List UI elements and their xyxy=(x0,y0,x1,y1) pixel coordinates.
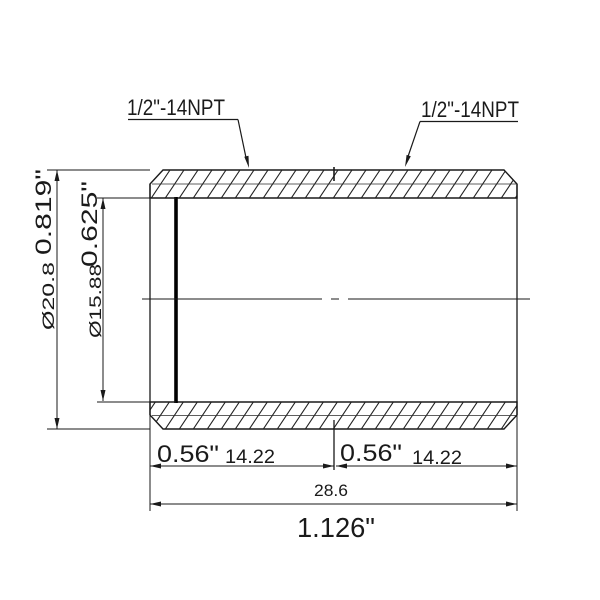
part-body xyxy=(136,167,534,470)
dim-thread-left-arrow-b xyxy=(323,464,334,469)
outer-diameter-mm-label: Ø20.8 xyxy=(39,262,58,330)
thread-length-left-inch-label: 0.56" xyxy=(157,441,219,468)
pipe-nipple-technical-drawing: 1/2"-14NPT 1/2"-14NPT 0.819" Ø20.8 0.625… xyxy=(0,0,600,600)
overall-length-inch-label: 1.126" xyxy=(297,512,375,543)
leader-thread-right: 1/2"-14NPT xyxy=(405,97,519,167)
leader-right-arrowhead xyxy=(405,155,411,167)
outer-diameter-inch-label: 0.819" xyxy=(31,169,56,255)
overall-length-mm-label: 28.6 xyxy=(314,481,348,500)
thread-spec-right-label: 1/2"-14NPT xyxy=(421,97,519,122)
leader-right-line xyxy=(408,122,421,159)
dim-inner-arrow-bottom xyxy=(101,390,106,401)
dim-thread-length-left: 0.56" 14.22 xyxy=(150,441,334,469)
dim-inner-diameter: 0.625" Ø15.88 xyxy=(77,181,176,402)
thread-length-left-mm-label: 14.22 xyxy=(225,447,275,468)
dim-overall-arrow-b xyxy=(506,502,517,507)
leader-left-line xyxy=(238,120,247,161)
thread-length-right-inch-label: 0.56" xyxy=(340,440,402,467)
dim-thread-length-right: 0.56" 14.22 xyxy=(336,440,517,469)
dim-overall-length: 28.6 1.126" xyxy=(150,481,517,543)
thread-length-right-mm-label: 14.22 xyxy=(412,448,462,469)
inner-diameter-mm-label: Ø15.88 xyxy=(86,264,105,338)
drawing-canvas: 1/2"-14NPT 1/2"-14NPT 0.819" Ø20.8 0.625… xyxy=(0,0,600,600)
dim-outer-arrow-bottom xyxy=(55,418,60,429)
leader-thread-left: 1/2"-14NPT xyxy=(127,95,249,168)
thread-spec-left-label: 1/2"-14NPT xyxy=(127,95,225,120)
dim-thread-right-arrow-b xyxy=(506,464,517,469)
leader-left-arrowhead xyxy=(244,156,249,168)
dim-overall-arrow-a xyxy=(150,502,161,507)
inner-diameter-inch-label: 0.625" xyxy=(77,181,102,267)
